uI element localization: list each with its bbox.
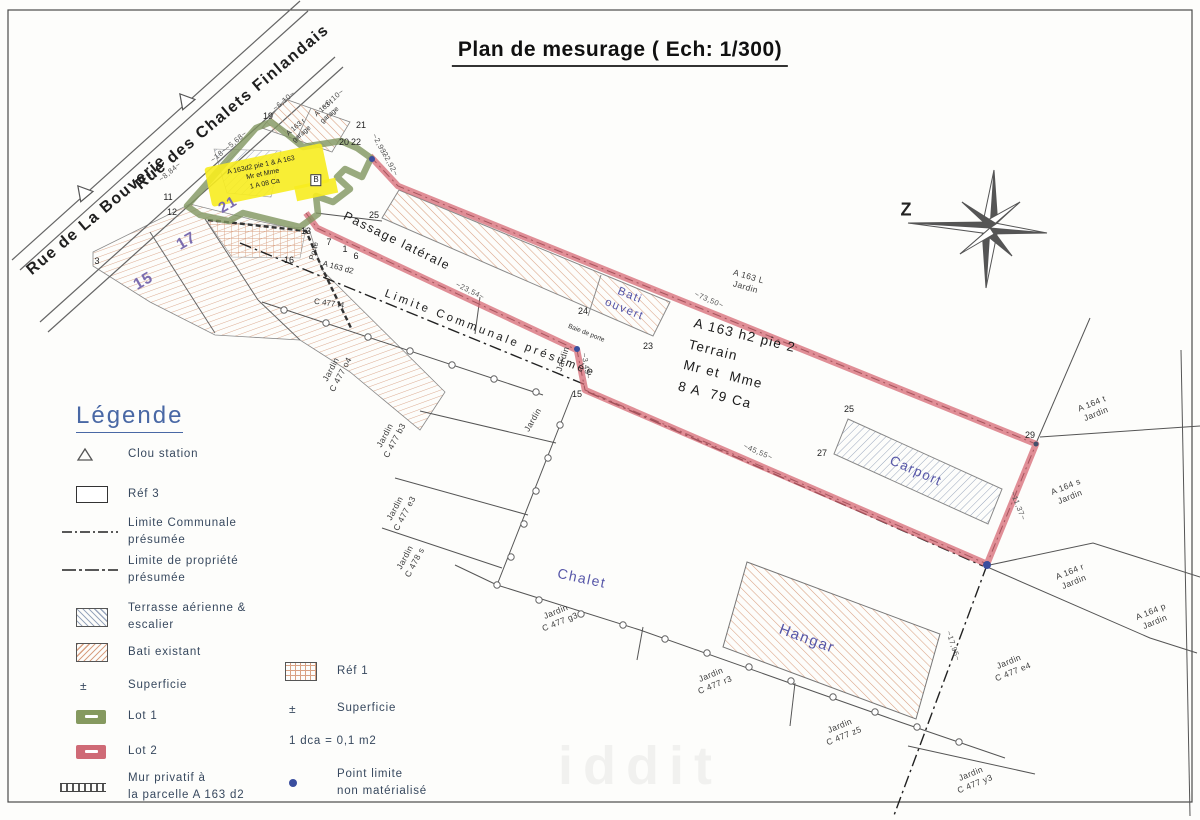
- parcel-lines: [262, 213, 1200, 816]
- compass-rose-icon: [908, 170, 1047, 288]
- legend-item-superficie-2: ± Superficie: [285, 700, 396, 717]
- hatch-grid-swatch: [285, 662, 337, 681]
- legend-item-label: Limite Communale présumée: [128, 515, 237, 550]
- legend-item-label: Réf 1: [337, 663, 369, 680]
- legend-item-terrasse: Terrasse aérienne & escalier: [76, 600, 246, 635]
- legend-item-mur-privatif: Mur privatif à la parcelle A 163 d2: [60, 770, 244, 805]
- dashdot-line-icon: [62, 567, 128, 573]
- legend-item-ref1: Réf 1: [285, 662, 369, 681]
- legend-item-label: Superficie: [128, 677, 187, 694]
- legend-item-point-limite: Point limite non matérialisé: [285, 766, 427, 801]
- dashdot-line-icon: [62, 529, 128, 535]
- clou-station-triangles: [72, 89, 195, 202]
- legend-item-superficie: ± Superficie: [76, 677, 187, 694]
- legend-item-label: Bati existant: [128, 644, 201, 661]
- mur-line-icon: [60, 783, 128, 792]
- legend-item-dca: 1 dca = 0,1 m2: [289, 733, 377, 750]
- legend-item-limite-communale: Limite Communale présumée: [62, 515, 237, 550]
- triangle-icon: [76, 447, 128, 462]
- legend-item-lot2: Lot 2: [76, 743, 158, 760]
- lot2-swatch: [76, 745, 128, 759]
- hatch-tan-swatch: [76, 643, 128, 662]
- blue-dot-icon: [285, 779, 337, 787]
- legend-item-label: Réf 3: [128, 486, 160, 503]
- building-a163d2: [382, 190, 670, 336]
- plus-minus-icon: ±: [285, 702, 337, 716]
- legend-item-lot1: Lot 1: [76, 708, 158, 725]
- survey-plan-page: Plan de mesurage ( Ech: 1/300): [0, 0, 1200, 820]
- legend-item-clou-station: Clou station: [76, 446, 198, 463]
- legend-item-limite-propriete: Limite de propriété présumée: [62, 553, 238, 588]
- legend-item-label: Clou station: [128, 446, 198, 463]
- legend-heading: Légende: [76, 402, 183, 433]
- legend-item-label: Limite de propriété présumée: [128, 553, 238, 588]
- legend-item-label: Lot 1: [128, 708, 158, 725]
- legend-item-label: Point limite non matérialisé: [337, 766, 427, 801]
- legend-item-label: Lot 2: [128, 743, 158, 760]
- rect-icon: [76, 486, 128, 503]
- page-title: Plan de mesurage ( Ech: 1/300): [452, 38, 788, 67]
- legend-item-ref3: Réf 3: [76, 486, 160, 503]
- hatch-blue-swatch: [76, 608, 128, 627]
- plus-minus-icon: ±: [76, 679, 128, 693]
- legend-item-label: 1 dca = 0,1 m2: [289, 733, 377, 750]
- legend-item-label: Superficie: [337, 700, 396, 717]
- legend-item-bati-existant: Bati existant: [76, 643, 201, 662]
- legend-item-label: Mur privatif à la parcelle A 163 d2: [128, 770, 244, 805]
- legend-item-label: Terrasse aérienne & escalier: [128, 600, 246, 635]
- lot1-swatch: [76, 710, 128, 724]
